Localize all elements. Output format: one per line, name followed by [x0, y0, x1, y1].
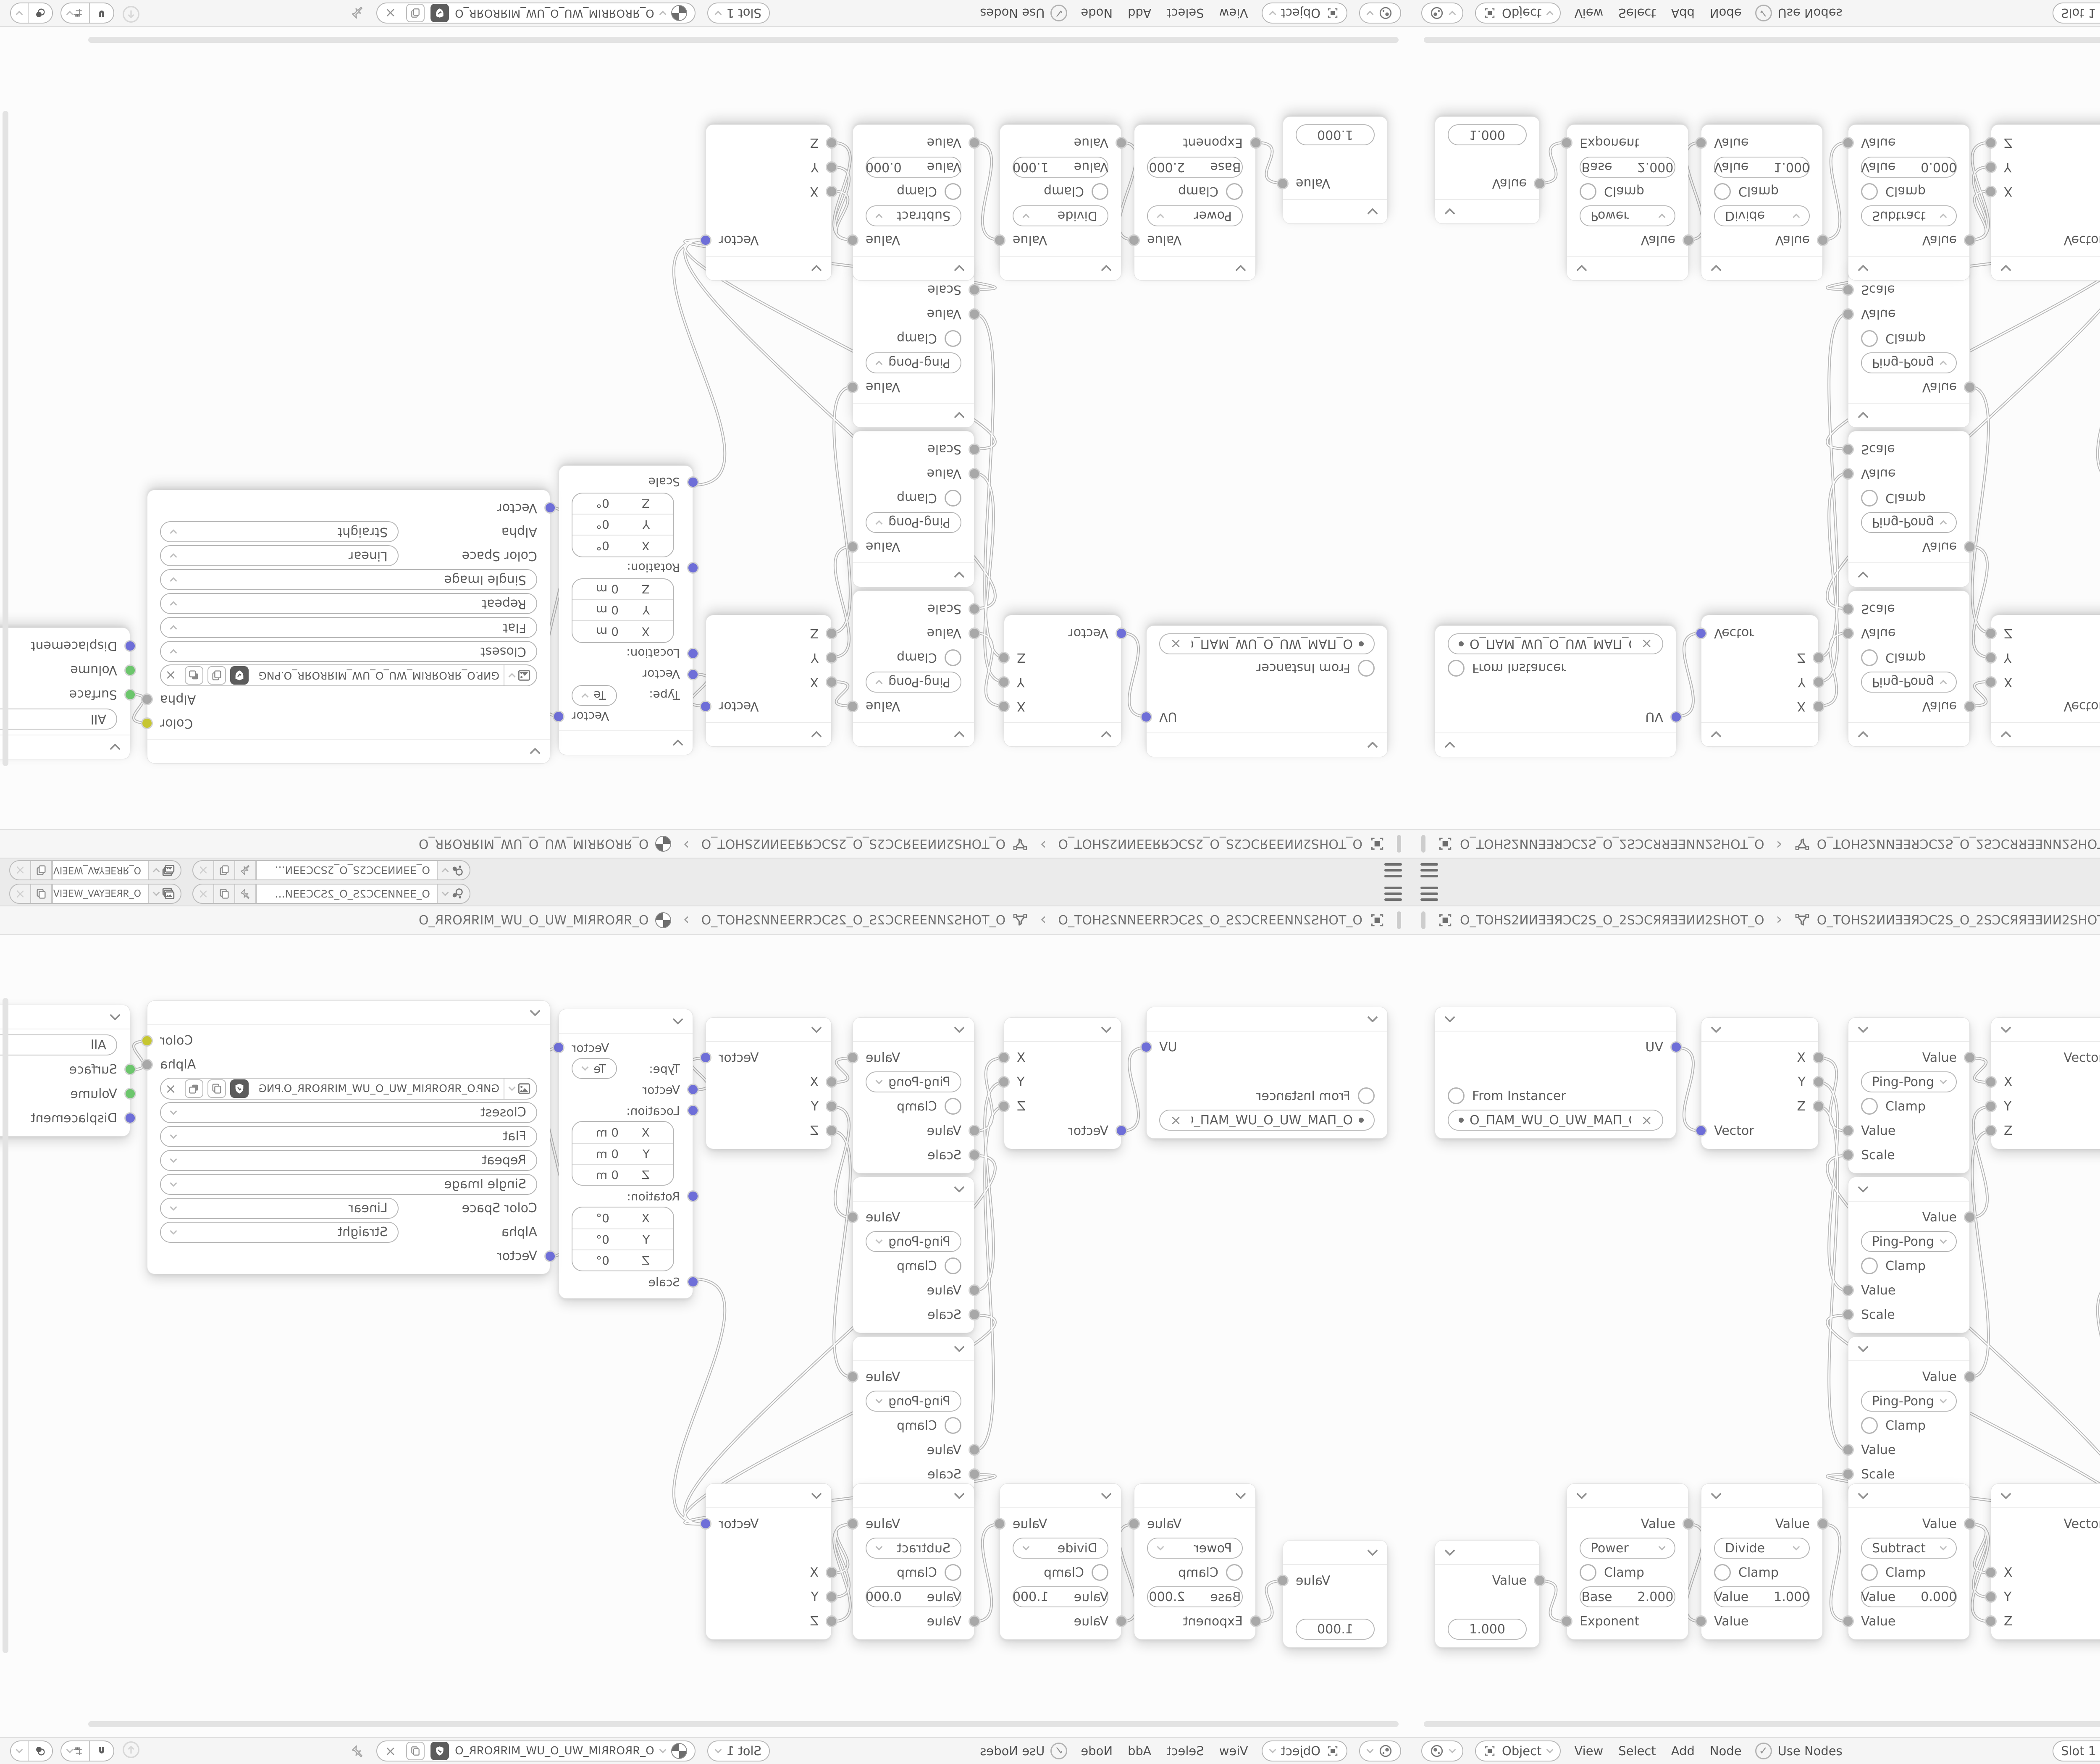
image-filename[interactable]: GИP.O_ЯROЯRIM_WU_O_UW_MIЯROЯR_O.PNG — [253, 1082, 499, 1095]
socket-scale-input[interactable] — [969, 1468, 980, 1480]
socket-vector-output[interactable] — [553, 711, 564, 722]
node-header[interactable] — [1991, 1018, 2100, 1042]
socket-vector-input[interactable] — [544, 502, 556, 514]
operation-select[interactable]: Ping-Pong — [866, 512, 961, 533]
socket-value-output[interactable] — [1964, 541, 1976, 553]
use-nodes-toggle[interactable]: ✓ Use Nodes — [980, 5, 1067, 21]
new-datablock-icon[interactable] — [31, 885, 52, 903]
clamp-checkbox[interactable] — [1861, 1257, 1878, 1274]
socket-value-output[interactable] — [1964, 1371, 1976, 1383]
operation-select[interactable]: Ping-Pong — [866, 352, 961, 373]
value-field[interactable]: Value1.000 — [1714, 1586, 1810, 1607]
scrollbar-vertical[interactable] — [3, 998, 8, 1653]
shader-type-select[interactable]: Object — [1262, 1740, 1347, 1761]
socket-x-output[interactable] — [998, 1052, 1010, 1063]
node-header[interactable] — [1567, 256, 1688, 280]
socket-value-input[interactable] — [969, 137, 980, 149]
socket-value-input[interactable] — [1842, 308, 1854, 320]
node-math-ping-pong-1[interactable]: Value Ping-Pong Clamp Value Scale — [853, 591, 974, 747]
node-header[interactable] — [706, 722, 831, 746]
scene-name[interactable]: O_ƎƎИИƎƆC2S_O_2SƆCƎƎИ... — [256, 885, 438, 903]
node-value[interactable]: Value 1.000 — [1435, 1540, 1540, 1648]
socket-scale-input[interactable] — [1842, 603, 1854, 615]
socket-z-input[interactable] — [826, 1125, 837, 1137]
node-header[interactable] — [853, 1018, 974, 1042]
breadcrumb-material[interactable]: O_ЯROЯRIM_WU_O_UW_MIЯROЯR_O — [419, 912, 672, 928]
socket-value-input[interactable] — [1842, 1284, 1854, 1296]
node-combine-xyz-b[interactable]: Vector X Y Z — [706, 1483, 832, 1640]
menu-node[interactable]: Node — [1079, 6, 1114, 20]
node-header[interactable] — [1567, 1484, 1688, 1508]
close-icon[interactable]: × — [1170, 636, 1186, 652]
value-field[interactable]: 1.000 — [1448, 1619, 1527, 1640]
uv-map-select[interactable]: O_ПAM_WU_O_UW_MAП_O× — [1448, 633, 1663, 654]
value-field[interactable]: Value1.000 — [1714, 157, 1810, 178]
node-mapping[interactable]: Vector Type:Texture Vector Location: X0 … — [559, 465, 693, 755]
new-datablock-icon[interactable] — [214, 885, 235, 903]
socket-scale-input[interactable] — [1842, 444, 1854, 455]
socket-value-input[interactable] — [1842, 1125, 1854, 1137]
socket-y-output[interactable] — [1813, 676, 1824, 688]
snapping-controls[interactable] — [60, 3, 114, 24]
snapping-controls[interactable] — [60, 1740, 114, 1761]
operation-select[interactable]: Divide — [1013, 1538, 1108, 1559]
new-datablock-icon[interactable] — [31, 861, 52, 879]
node-math-ping-pong-3[interactable]: Value Ping-Pong Clamp Value Scale — [853, 271, 974, 428]
socket-x-input[interactable] — [1985, 676, 1997, 688]
mapping-type-select[interactable]: Texture — [572, 1058, 617, 1079]
node-math-power[interactable]: Value Power Clamp Base2.000 Exponent — [1134, 1483, 1256, 1640]
material-slot-select[interactable]: Slot 1 — [2053, 1740, 2100, 1761]
close-icon[interactable]: × — [1637, 1112, 1652, 1128]
node-math-divide[interactable]: Value Divide Clamp Value1.000 Value — [1701, 1483, 1823, 1640]
node-header[interactable] — [1848, 1018, 1969, 1042]
clamp-checkbox[interactable] — [945, 649, 961, 666]
breadcrumb-object[interactable]: O_TOHS2ИИƎƎЯƆC2S_O_2SƆCЯЯƎƎИИ2SHOT_O — [1794, 912, 2100, 928]
socket-x-input[interactable] — [826, 186, 837, 197]
material-slot-select[interactable]: Slot 1 — [707, 3, 770, 24]
socket-exponent-input[interactable] — [1250, 1615, 1262, 1627]
menu-view[interactable]: View — [1572, 6, 1605, 20]
operation-select[interactable]: Power — [1580, 1538, 1675, 1559]
use-nodes-toggle[interactable]: ✓ Use Nodes — [980, 1743, 1067, 1759]
uv-map-select[interactable]: O_ПAM_WU_O_UW_MAП_O× — [1159, 633, 1375, 654]
operation-select[interactable]: Subtract — [866, 1538, 961, 1559]
node-math-divide[interactable]: Value Divide Clamp Value1.000 Value — [1000, 124, 1121, 281]
socket-scale-input[interactable] — [687, 1276, 699, 1288]
node-header[interactable] — [1991, 722, 2100, 746]
node-header[interactable] — [1134, 1484, 1255, 1508]
node-value[interactable]: Value 1.000 — [1283, 1540, 1388, 1648]
socket-value-input[interactable] — [1842, 627, 1854, 639]
node-uv-map[interactable]: UV From Instancer O_ПAM_WU_O_UW_MAП_O× — [1146, 1007, 1388, 1139]
editor-type-select[interactable] — [1359, 1740, 1401, 1761]
image-datablock-field[interactable]: GИP.O_ЯROЯRIM_WU_O_UW_MIЯROЯR_O.PNG × — [160, 665, 537, 687]
socket-y-input[interactable] — [1985, 161, 1997, 173]
menu-select[interactable]: Select — [1617, 1744, 1657, 1758]
node-header[interactable] — [1435, 1541, 1539, 1565]
socket-y-input[interactable] — [826, 1100, 837, 1112]
mapping-type-select[interactable]: Texture — [572, 685, 617, 706]
operation-select[interactable]: Ping-Pong — [1861, 1391, 1957, 1412]
socket-value-output[interactable] — [1128, 234, 1140, 246]
view-layer-name[interactable]: O_ЯRƎEYAV_WƎEIV_O_VIƎEW_VAYƎEЯR_O — [52, 861, 149, 879]
socket-value-output[interactable] — [1817, 1518, 1829, 1530]
base-field[interactable]: Base2.000 — [1580, 157, 1675, 178]
socket-vector-output[interactable] — [700, 1052, 711, 1063]
socket-value-output[interactable] — [994, 1518, 1005, 1530]
socket-location-input[interactable] — [687, 648, 699, 659]
socket-y-input[interactable] — [826, 161, 837, 173]
view-layer-name[interactable]: O_ЯRƎEYAV_WƎEIV_O_VIƎEW_VAYƎEЯR_O — [52, 885, 149, 903]
operation-select[interactable]: Ping-Pong — [1861, 1231, 1957, 1252]
node-header[interactable] — [1435, 1007, 1676, 1032]
breadcrumb-scene[interactable]: O_TOHS2ИИƎƎЯƆC2S_O_2SƆCЯЯƎƎИИ2SHOT_O — [1437, 836, 1764, 852]
close-icon[interactable]: × — [385, 1743, 400, 1759]
socket-value-input[interactable] — [1695, 1615, 1707, 1627]
socket-value-output[interactable] — [847, 381, 858, 393]
socket-y-output[interactable] — [998, 676, 1010, 688]
socket-value-output[interactable] — [1964, 381, 1976, 393]
socket-value-output[interactable] — [847, 701, 858, 712]
operation-select[interactable]: Divide — [1013, 205, 1108, 226]
socket-x-output[interactable] — [998, 701, 1010, 712]
menu-node[interactable]: Node — [1079, 1744, 1114, 1758]
editor-type-select[interactable] — [1421, 3, 1463, 24]
menu-node[interactable]: Node — [1708, 1744, 1743, 1758]
pin-icon[interactable] — [235, 885, 256, 903]
scrollbar-vertical[interactable] — [3, 111, 8, 766]
shader-type-select[interactable]: Object — [1475, 3, 1561, 24]
socket-exponent-input[interactable] — [1250, 137, 1262, 149]
node-separate-xyz[interactable]: X Y Z Vector — [1701, 1017, 1819, 1149]
clamp-checkbox[interactable] — [945, 1564, 961, 1581]
socket-x-input[interactable] — [1985, 1076, 1997, 1088]
pin-icon[interactable] — [235, 861, 256, 879]
socket-scale-input[interactable] — [687, 476, 699, 488]
operation-select[interactable]: Ping-Pong — [1861, 512, 1957, 533]
scene-selector[interactable]: O_ƎƎИИƎƆC2S_O_2SƆCƎƎИ... × — [192, 884, 470, 904]
new-datablock-icon[interactable] — [214, 861, 235, 879]
color-space-select[interactable]: Linear — [160, 546, 399, 567]
node-header[interactable] — [1848, 1337, 1969, 1361]
fake-user-shield-icon[interactable] — [430, 1742, 449, 1760]
close-icon[interactable]: × — [193, 861, 214, 879]
pin-icon[interactable] — [350, 1744, 365, 1758]
from-instancer-checkbox[interactable] — [1448, 660, 1465, 677]
node-math-subtract[interactable]: Value Subtract Clamp Value0.000 Value — [853, 1483, 974, 1640]
node-editor-canvas[interactable]: UV From Instancer O_ПAM_WU_O_UW_MAП_O× X… — [1411, 27, 2100, 829]
image-datablock-field[interactable]: GИP.O_ЯROЯRIM_WU_O_UW_MIЯROЯR_O.PNG × — [160, 1078, 537, 1100]
node-header[interactable] — [853, 1177, 974, 1202]
node-material-output[interactable]: All Surface Volume Displacement — [0, 1005, 130, 1137]
socket-value-input[interactable] — [969, 1444, 980, 1456]
socket-value-input[interactable] — [1695, 137, 1707, 149]
close-icon[interactable]: × — [193, 885, 214, 903]
snap-grid-select[interactable] — [61, 1741, 90, 1761]
use-nodes-toggle[interactable]: ✓ Use Nodes — [1755, 5, 1843, 21]
node-header[interactable] — [706, 256, 831, 280]
socket-scale-input[interactable] — [1842, 1309, 1854, 1320]
node-math-ping-pong-1[interactable]: Value Ping-Pong Clamp Value Scale — [1848, 1017, 1970, 1173]
use-nodes-toggle[interactable]: ✓ Use Nodes — [1755, 1743, 1843, 1759]
node-math-ping-pong-2[interactable]: Value Ping-Pong Clamp Value Scale — [1848, 1177, 1970, 1333]
socket-uv-output[interactable] — [1670, 711, 1682, 723]
target-select[interactable]: All — [0, 1034, 117, 1055]
node-header[interactable] — [1848, 403, 1969, 427]
shader-type-select[interactable]: Object — [1475, 1740, 1561, 1761]
node-combine-xyz-b[interactable]: Vector X Y Z — [706, 124, 832, 281]
socket-x-input[interactable] — [1985, 186, 1997, 197]
socket-z-input[interactable] — [1985, 627, 1997, 639]
node-combine-xyz-b[interactable]: Vector X Y Z — [1991, 124, 2100, 281]
socket-scale-input[interactable] — [969, 284, 980, 296]
operation-select[interactable]: Ping-Pong — [866, 1231, 961, 1252]
node-header[interactable] — [1701, 1018, 1818, 1042]
node-header[interactable] — [1848, 1177, 1969, 1202]
socket-vector-output[interactable] — [553, 1042, 564, 1053]
breadcrumb-object[interactable]: O_TOHS2ИИƎƎЯƆC2S_O_2SƆCЯЯƎƎИИ2SHOT_O — [701, 836, 1029, 852]
node-header[interactable] — [1134, 256, 1255, 280]
shader-type-select[interactable]: Object — [1262, 3, 1347, 24]
breadcrumb-scene[interactable]: O_TOHS2ИИƎƎЯƆC2S_O_2SƆCЯЯƎƎИИ2SHOT_O — [1058, 836, 1385, 852]
socket-value-output[interactable] — [994, 234, 1005, 246]
clamp-checkbox[interactable] — [945, 1098, 961, 1115]
socket-alpha-output[interactable] — [141, 1059, 153, 1071]
socket-value-input[interactable] — [1842, 1444, 1854, 1456]
node-math-subtract[interactable]: Value Subtract Clamp Value0.000 Value — [1848, 1483, 1970, 1640]
operation-select[interactable]: Ping-Pong — [866, 672, 961, 693]
menu-add[interactable]: Add — [1126, 6, 1153, 20]
node-header[interactable] — [853, 562, 974, 587]
socket-z-input[interactable] — [826, 137, 837, 149]
socket-vector-input[interactable] — [687, 1084, 699, 1095]
node-header[interactable] — [1004, 722, 1121, 746]
node-math-power[interactable]: Value Power Clamp Base2.000 Exponent — [1134, 124, 1256, 281]
socket-surface-input[interactable] — [124, 689, 136, 701]
node-combine-xyz-a[interactable]: Vector X Y Z — [1991, 615, 2100, 747]
node-combine-xyz-a[interactable]: Vector X Y Z — [706, 1017, 832, 1149]
scrollbar-horizontal[interactable] — [1424, 1721, 2100, 1727]
node-material-output[interactable]: All Surface Volume Displacement — [0, 627, 130, 759]
magnet-icon[interactable] — [90, 1741, 113, 1761]
auto-offset-select[interactable] — [11, 1741, 29, 1761]
socket-value-output[interactable] — [847, 1518, 858, 1530]
node-header[interactable] — [706, 1484, 831, 1508]
node-math-ping-pong-3[interactable]: Value Ping-Pong Clamp Value Scale — [1848, 271, 1970, 428]
projection-select[interactable]: Flat — [160, 617, 537, 638]
socket-uv-output[interactable] — [1140, 711, 1152, 723]
auto-offset-controls[interactable] — [10, 1740, 53, 1761]
overlap-circles-icon[interactable] — [29, 1741, 52, 1761]
interpolation-select[interactable]: Closest — [160, 1102, 537, 1123]
alpha-mode-select[interactable]: Straight — [160, 522, 399, 543]
node-mapping[interactable]: Vector Type:Texture Vector Location: X0 … — [559, 1009, 693, 1299]
node-math-power[interactable]: Value Power Clamp Base2.000 Exponent — [1567, 1483, 1688, 1640]
clamp-checkbox[interactable] — [1714, 183, 1731, 200]
node-uv-map[interactable]: UV From Instancer O_ПAM_WU_O_UW_MAП_O× — [1146, 625, 1388, 757]
socket-vector-input[interactable] — [687, 669, 699, 680]
operation-select[interactable]: Power — [1147, 1538, 1243, 1559]
socket-vector-output[interactable] — [700, 701, 711, 712]
socket-value-output[interactable] — [1964, 701, 1976, 712]
node-math-divide[interactable]: Value Divide Clamp Value1.000 Value — [1000, 1483, 1121, 1640]
socket-x-input[interactable] — [1985, 1567, 1997, 1578]
fake-user-shield-icon[interactable] — [430, 4, 449, 22]
clamp-checkbox[interactable] — [1714, 1564, 1731, 1581]
socket-x-input[interactable] — [826, 1567, 837, 1578]
close-icon[interactable]: × — [1637, 636, 1652, 652]
operation-select[interactable]: Ping-Pong — [1861, 352, 1957, 373]
clamp-checkbox[interactable] — [945, 330, 961, 347]
node-combine-xyz-b[interactable]: Vector X Y Z — [1991, 1483, 2100, 1640]
auto-offset-select[interactable] — [11, 3, 29, 23]
material-datablock-field[interactable]: O_ЯROЯRIM_WU_O_UW_MIЯROЯR_O × — [376, 3, 695, 24]
parent-tree-button[interactable] — [122, 3, 140, 24]
socket-value-input[interactable] — [969, 1284, 980, 1296]
node-header[interactable] — [853, 256, 974, 280]
socket-y-input[interactable] — [826, 1591, 837, 1603]
view-layer-selector[interactable]: O_ЯRƎEYAV_WƎEIV_O_VIƎEW_VAYƎEЯR_O × — [9, 860, 181, 880]
node-uv-map[interactable]: UV From Instancer O_ПAM_WU_O_UW_MAП_O× — [1435, 1007, 1676, 1139]
socket-value-output[interactable] — [1534, 178, 1546, 189]
clamp-checkbox[interactable] — [1861, 649, 1878, 666]
clamp-checkbox[interactable] — [1580, 1564, 1596, 1581]
clamp-checkbox[interactable] — [1580, 183, 1596, 200]
clamp-checkbox[interactable] — [1861, 490, 1878, 507]
node-math-ping-pong-2[interactable]: Value Ping-Pong Clamp Value Scale — [853, 431, 974, 587]
clamp-checkbox[interactable] — [1861, 330, 1878, 347]
clamp-checkbox[interactable] — [1861, 1564, 1878, 1581]
node-header[interactable] — [853, 1337, 974, 1361]
hamburger-menu-icon[interactable] — [1384, 887, 1402, 901]
node-separate-xyz[interactable]: X Y Z Vector — [1701, 615, 1819, 747]
socket-surface-input[interactable] — [124, 1063, 136, 1075]
pin-icon[interactable] — [350, 6, 365, 20]
socket-volume-input[interactable] — [124, 1088, 136, 1100]
node-header[interactable] — [1848, 562, 1969, 587]
socket-y-input[interactable] — [1985, 652, 1997, 664]
hamburger-menu-icon[interactable] — [1420, 863, 1438, 877]
operation-select[interactable]: Ping-Pong — [866, 1391, 961, 1412]
node-editor-canvas[interactable]: UV From Instancer O_ПAM_WU_O_UW_MAП_O× X… — [0, 27, 1411, 829]
menu-add[interactable]: Add — [1669, 6, 1696, 20]
socket-scale-input[interactable] — [1842, 1468, 1854, 1480]
close-icon[interactable]: × — [385, 5, 400, 21]
value-field[interactable]: Value1.000 — [1013, 157, 1108, 178]
socket-x-output[interactable] — [1813, 1052, 1824, 1063]
fake-user-shield-icon[interactable] — [230, 1079, 249, 1098]
area-grip[interactable] — [1421, 835, 1425, 853]
scene-name[interactable]: O_ƎƎИИƎƆC2S_O_2SƆCƎƎИ... — [256, 861, 438, 879]
socket-value-output[interactable] — [1817, 234, 1829, 246]
socket-location-input[interactable] — [687, 1105, 699, 1116]
socket-value-output[interactable] — [1683, 234, 1694, 246]
socket-x-input[interactable] — [826, 676, 837, 688]
node-header[interactable] — [853, 1484, 974, 1508]
copy-icon[interactable] — [406, 1742, 425, 1760]
socket-y-output[interactable] — [998, 1076, 1010, 1088]
socket-value-input[interactable] — [969, 1125, 980, 1137]
copy-icon[interactable] — [406, 4, 425, 22]
socket-scale-input[interactable] — [1842, 284, 1854, 296]
clamp-checkbox[interactable] — [1092, 1564, 1108, 1581]
node-uv-map[interactable]: UV From Instancer O_ПAM_WU_O_UW_MAП_O× — [1435, 625, 1676, 757]
socket-scale-input[interactable] — [969, 1309, 980, 1320]
node-header[interactable] — [147, 739, 550, 763]
value-field[interactable]: 1.000 — [1448, 124, 1527, 145]
socket-rotation-input[interactable] — [687, 562, 699, 574]
value-field[interactable]: 1.000 — [1296, 124, 1375, 145]
uv-map-select[interactable]: O_ПAM_WU_O_UW_MAП_O× — [1448, 1110, 1663, 1131]
material-slot-select[interactable]: Slot 1 — [707, 1740, 770, 1761]
node-header[interactable] — [1147, 1007, 1387, 1032]
copy-icon[interactable] — [207, 667, 226, 685]
close-icon[interactable]: × — [1170, 1112, 1186, 1128]
interpolation-select[interactable]: Closest — [160, 641, 537, 662]
value-field[interactable]: Value0.000 — [1861, 157, 1957, 178]
socket-value-output[interactable] — [847, 1211, 858, 1223]
breadcrumb-object[interactable]: O_TOHS2ИИƎƎЯƆC2S_O_2SƆCЯЯƎƎИИ2SHOT_O — [701, 912, 1029, 928]
node-image-texture[interactable]: Color Alpha GИP.O_ЯROЯRIM_WU_O_UW_MIЯROЯ… — [147, 1000, 550, 1274]
hamburger-menu-icon[interactable] — [1420, 887, 1438, 901]
socket-z-output[interactable] — [1813, 652, 1824, 664]
socket-value-input[interactable] — [1842, 468, 1854, 480]
clamp-checkbox[interactable] — [1226, 1564, 1243, 1581]
node-header[interactable] — [1435, 732, 1676, 757]
base-field[interactable]: Base2.000 — [1147, 1586, 1243, 1607]
image-filename[interactable]: GИP.O_ЯROЯRIM_WU_O_UW_MIЯROЯR_O.PNG — [253, 669, 499, 682]
parent-tree-button[interactable] — [122, 1740, 140, 1762]
socket-value-output[interactable] — [1964, 234, 1976, 246]
material-name[interactable]: O_ЯROЯRIM_WU_O_UW_MIЯROЯR_O — [455, 7, 654, 19]
area-grip[interactable] — [1421, 911, 1425, 929]
node-header[interactable] — [1283, 199, 1387, 223]
socket-value-output[interactable] — [1277, 178, 1289, 189]
node-separate-xyz[interactable]: X Y Z Vector — [1004, 615, 1121, 747]
clamp-checkbox[interactable] — [945, 183, 961, 200]
menu-select[interactable]: Select — [1165, 1744, 1205, 1758]
clamp-checkbox[interactable] — [945, 1417, 961, 1434]
socket-value-output[interactable] — [1128, 1518, 1140, 1530]
socket-uv-output[interactable] — [1670, 1041, 1682, 1053]
socket-scale-input[interactable] — [969, 1149, 980, 1161]
socket-alpha-output[interactable] — [141, 694, 153, 706]
node-math-ping-pong-2[interactable]: Value Ping-Pong Clamp Value Scale — [853, 1177, 974, 1333]
scene-selector[interactable]: O_ƎƎИИƎƆC2S_O_2SƆCƎƎИ... × — [192, 860, 470, 880]
view-layer-selector[interactable]: O_ЯRƎEYAV_WƎEIV_O_VIƎEW_VAYƎEЯR_O × — [9, 884, 181, 904]
value-field[interactable]: Value1.000 — [1013, 1586, 1108, 1607]
extension-select[interactable]: Repeat — [160, 1150, 537, 1171]
node-header[interactable] — [1000, 256, 1121, 280]
node-math-ping-pong-2[interactable]: Value Ping-Pong Clamp Value Scale — [1848, 431, 1970, 587]
value-field[interactable]: Value0.000 — [866, 157, 961, 178]
node-editor-canvas[interactable]: UV From Instancer O_ПAM_WU_O_UW_MAП_O× X… — [1411, 935, 2100, 1737]
from-instancer-checkbox[interactable] — [1448, 1087, 1465, 1104]
node-math-subtract[interactable]: Value Subtract Clamp Value0.000 Value — [853, 124, 974, 281]
socket-scale-input[interactable] — [969, 444, 980, 455]
node-header[interactable] — [853, 722, 974, 746]
node-header[interactable] — [0, 735, 130, 759]
socket-rotation-input[interactable] — [687, 1190, 699, 1202]
node-header[interactable] — [1991, 256, 2100, 280]
socket-value-input[interactable] — [1842, 137, 1854, 149]
value-field[interactable]: 1.000 — [1296, 1619, 1375, 1640]
socket-vector-output[interactable] — [700, 1518, 711, 1530]
socket-exponent-input[interactable] — [1561, 1615, 1572, 1627]
operation-select[interactable]: Ping-Pong — [1861, 672, 1957, 693]
node-math-ping-pong-3[interactable]: Value Ping-Pong Clamp Value Scale — [1848, 1336, 1970, 1493]
